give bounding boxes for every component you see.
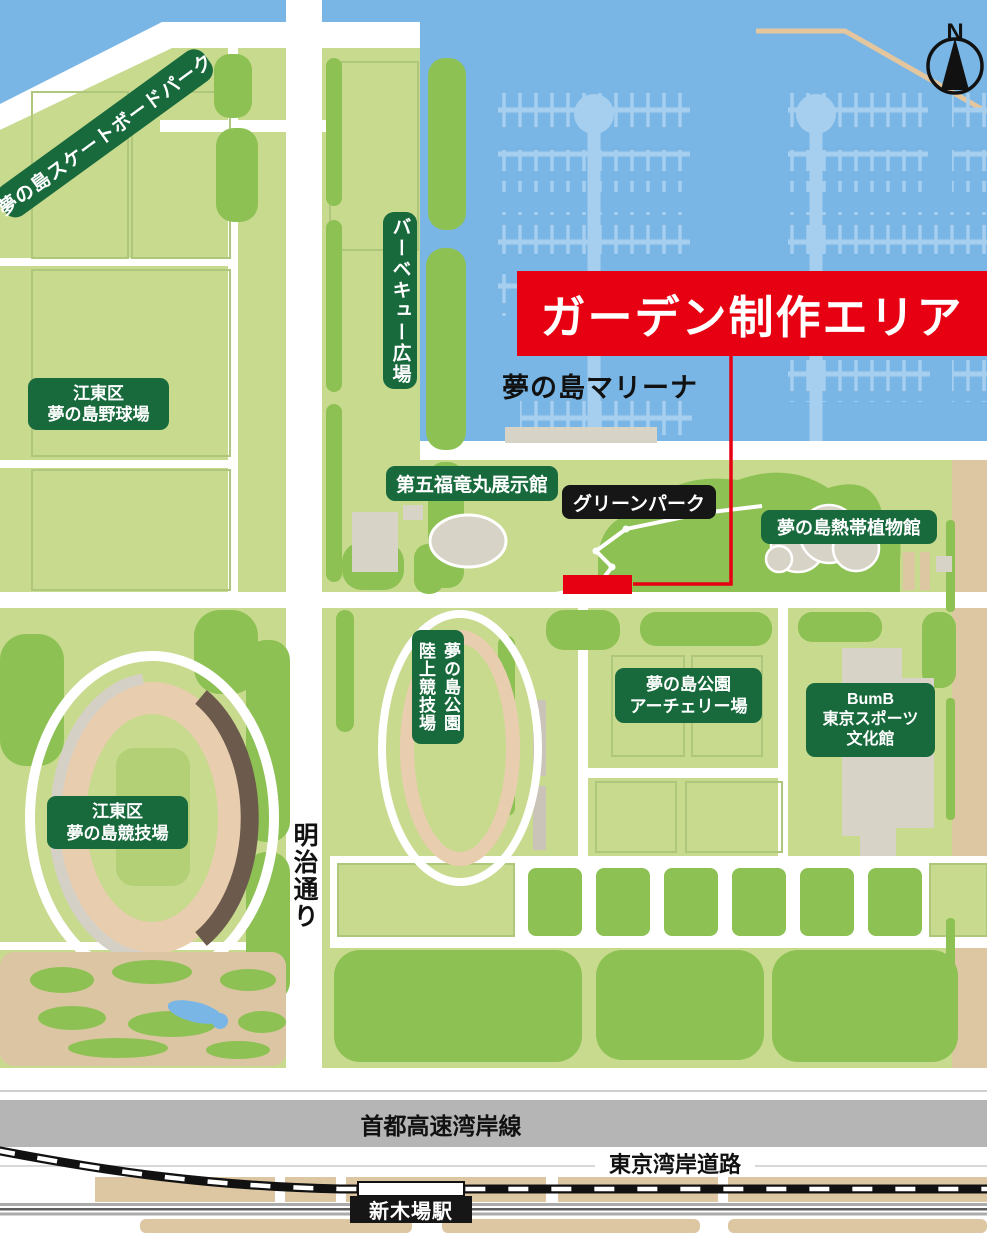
bumb-sports-center-banner: BumB 東京スポーツ 文化館 — [806, 683, 935, 757]
stadium-banner: 江東区 夢の島競技場 — [47, 796, 188, 849]
park-map: N 夢の島スケートボードパーク バーベキュー広場 ガーデン制作エリア 夢の島マリ… — [0, 0, 987, 1233]
garden-area-label: ガーデン制作エリア — [540, 281, 963, 346]
expressway-label: 首都高速湾岸線 — [330, 1110, 552, 1138]
botanical-dome-banner: 夢の島熱帯植物館 — [761, 510, 937, 544]
bottom-section — [0, 1068, 987, 1233]
bbq-plaza-banner: バーベキュー広場 — [383, 212, 417, 389]
bay-road-lines — [0, 1203, 987, 1216]
station-name-badge: 新木場駅 — [350, 1196, 472, 1223]
meiji-street-label: 明治通り — [288, 806, 320, 946]
bbq-plaza-label: バーベキュー広場 — [387, 217, 414, 385]
daigo-fukuryumaru-banner: 第五福竜丸展示館 — [386, 466, 558, 501]
marina-label: 夢の島マリーナ — [502, 367, 712, 403]
map-artwork: N — [0, 0, 987, 1233]
baseball-field-banner: 江東区 夢の島野球場 — [28, 378, 169, 430]
athletics-stadium-banner: 夢の島公園 陸上競技場 — [412, 630, 464, 744]
bay-road-label: 東京湾岸道路 — [595, 1149, 755, 1177]
green-park-banner: グリーンパーク — [562, 485, 716, 519]
maze-garden — [0, 952, 286, 1066]
garden-area-banner: ガーデン制作エリア — [517, 271, 987, 356]
archery-field-banner: 夢の島公園 アーチェリー場 — [615, 668, 762, 723]
compass-north-letter: N — [946, 19, 963, 46]
